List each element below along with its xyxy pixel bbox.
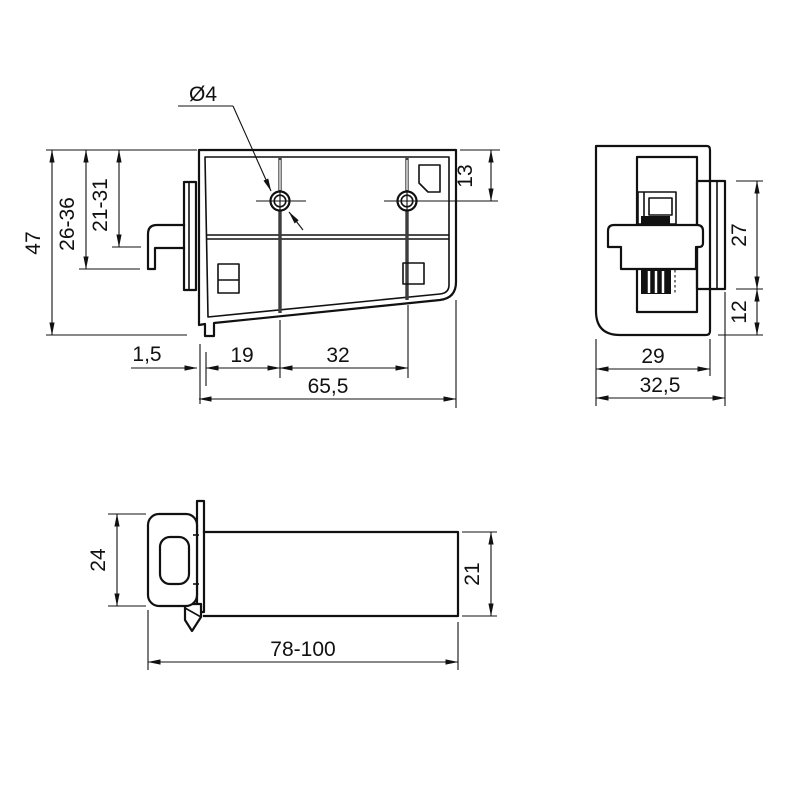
dim-total-height-label: 47 xyxy=(22,231,45,254)
dim-total-width-label: 65,5 xyxy=(308,375,349,398)
technical-drawing: Ø4 47 26-36 21-31 13 xyxy=(0,0,800,800)
bottom-body-tube xyxy=(204,532,458,616)
dim-19-label: 19 xyxy=(230,344,253,367)
side-latch-head xyxy=(608,225,703,269)
dim-flange-height-label: 27 xyxy=(728,223,751,246)
dim-hole-diameter-leader xyxy=(233,106,271,191)
dim-range-outer-label: 26-36 xyxy=(56,197,79,251)
dim-32-label: 32 xyxy=(326,344,349,367)
dim-range-inner-label: 21-31 xyxy=(89,178,112,232)
front-body-inner-wall xyxy=(205,157,449,317)
front-body-outline xyxy=(199,150,456,336)
dim-wall-thickness-label: 1,5 xyxy=(132,343,161,366)
dim-13-label: 13 xyxy=(454,164,477,187)
front-window-top-right xyxy=(419,165,440,192)
bottom-view: 24 21 78-100 xyxy=(87,501,497,670)
dim-side-bottom-group: 29 32,5 xyxy=(596,292,725,406)
front-latch-tongue xyxy=(148,225,184,269)
front-view: Ø4 47 26-36 21-31 13 xyxy=(22,83,500,408)
dim-hole-top-offset: 13 xyxy=(454,150,500,201)
side-spring-housing-inner xyxy=(649,198,672,215)
dim-side-total-width-label: 32,5 xyxy=(640,374,681,397)
dim-head-height: 24 xyxy=(87,514,146,606)
dim-front-bottom-group: 1,5 19 32 65,5 xyxy=(131,300,456,408)
front-flange-plate xyxy=(184,182,196,290)
bottom-latch-tip xyxy=(185,604,201,631)
dim-head-height-label: 24 xyxy=(87,548,110,572)
dim-bottom-offset-label: 12 xyxy=(728,300,751,323)
dim-tube-height-label: 21 xyxy=(461,562,484,585)
dim-hole-diameter-label: Ø4 xyxy=(189,83,217,106)
dim-body-width-label: 29 xyxy=(641,345,664,368)
dim-tube-height: 21 xyxy=(461,532,497,616)
drawing-canvas: Ø4 47 26-36 21-31 13 xyxy=(0,0,800,800)
front-window-bottom-left xyxy=(218,264,239,293)
dim-front-left-group: 47 26-36 21-31 xyxy=(22,150,197,335)
dim-total-length-label: 78-100 xyxy=(270,638,335,661)
dim-hole-diameter-counter-arrow xyxy=(289,212,303,230)
side-view: 27 12 29 32,5 xyxy=(596,146,763,406)
side-upper-spring-band xyxy=(641,216,670,224)
